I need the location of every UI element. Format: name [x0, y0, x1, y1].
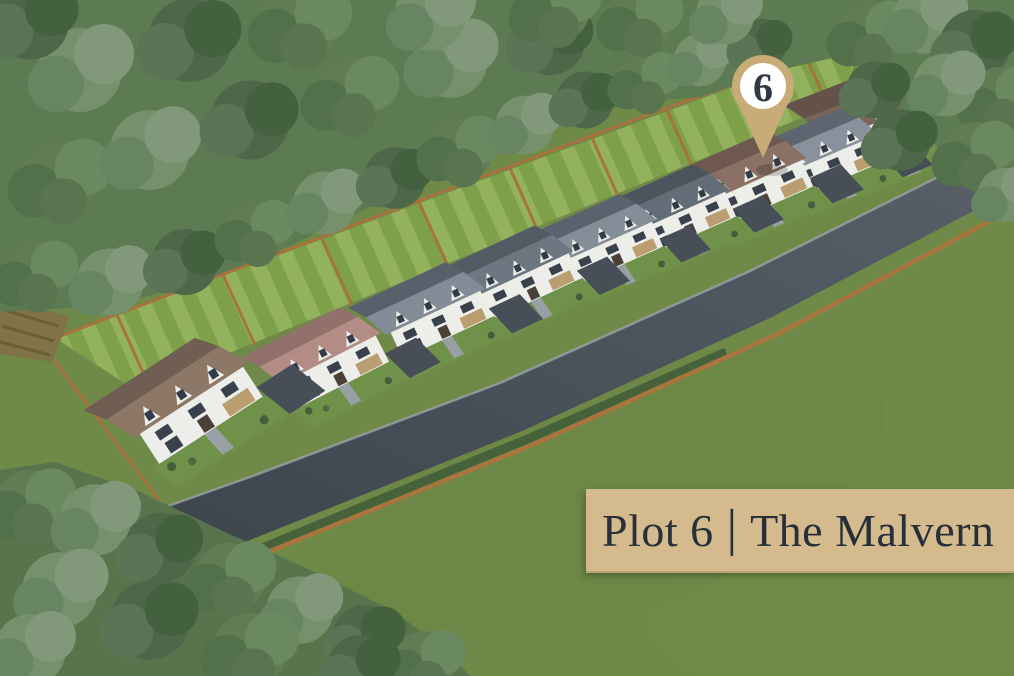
house-type-name: The Malvern: [750, 508, 994, 554]
aerial-development-illustration: 6: [0, 0, 1014, 676]
pin-shadow: [756, 164, 788, 176]
pin-number: 6: [753, 65, 773, 110]
banner-divider: |: [727, 503, 737, 555]
plot-label: Plot 6: [602, 508, 714, 554]
plot-banner: Plot 6 | The Malvern: [586, 489, 1014, 573]
site-plan-render: 6 Plot 6 | The Malvern: [0, 0, 1014, 676]
